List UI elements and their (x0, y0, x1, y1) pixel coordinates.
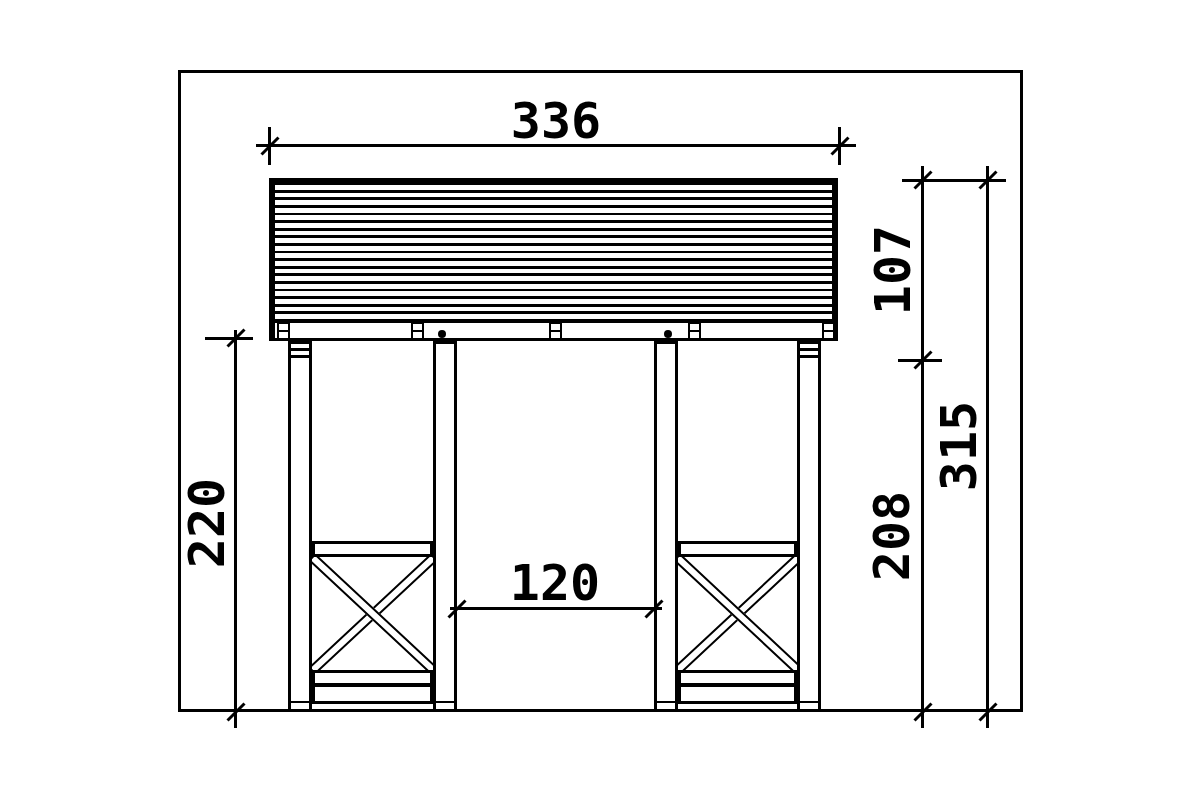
rafter-bracket (411, 322, 424, 340)
post-foot-line (800, 701, 818, 704)
post-foot-line (291, 701, 309, 704)
dim-value-clearance-height: 220 (182, 478, 232, 568)
bracket-divider (279, 330, 288, 333)
dim-value-opening-width: 120 (510, 558, 600, 608)
roof-panel (269, 178, 838, 341)
post-cap-line (291, 348, 309, 351)
bracket-divider (690, 330, 699, 333)
bracket-divider (551, 330, 560, 333)
post-outer-left (288, 341, 312, 712)
dim-value-frame-height: 208 (867, 491, 917, 581)
bracket-divider (824, 330, 833, 333)
post-cap-line (291, 355, 309, 358)
rafter-bracket (549, 322, 562, 340)
dim-value-total-height: 315 (934, 401, 984, 491)
post-outer-right (797, 341, 821, 712)
post-cap-line (800, 348, 818, 351)
post-foot-line (436, 701, 454, 704)
bolt-marker (664, 330, 672, 338)
dim-value-roof-height: 107 (868, 225, 918, 315)
railing-top-rail-left (312, 541, 433, 557)
post-inner-right (654, 341, 678, 712)
roof-cladding-stripes (275, 185, 832, 320)
rafter-bracket (822, 322, 835, 340)
railing-plinth-left (312, 684, 433, 704)
rafter-bracket (277, 322, 290, 340)
dim-value-overall-width: 336 (511, 96, 601, 146)
post-inner-left (433, 341, 457, 712)
railing-x-panel-left (312, 557, 433, 670)
railing-plinth-right (678, 684, 797, 704)
railing-x-panel-right (678, 557, 797, 670)
rafter-bracket (688, 322, 701, 340)
bolt-marker (438, 330, 446, 338)
technical-drawing-canvas: 336 120 220 107 208 315 (0, 0, 1200, 800)
bracket-divider (413, 330, 422, 333)
extension-line (205, 337, 253, 340)
railing-top-rail-right (678, 541, 797, 557)
post-cap-line (800, 355, 818, 358)
post-foot-line (657, 701, 675, 704)
